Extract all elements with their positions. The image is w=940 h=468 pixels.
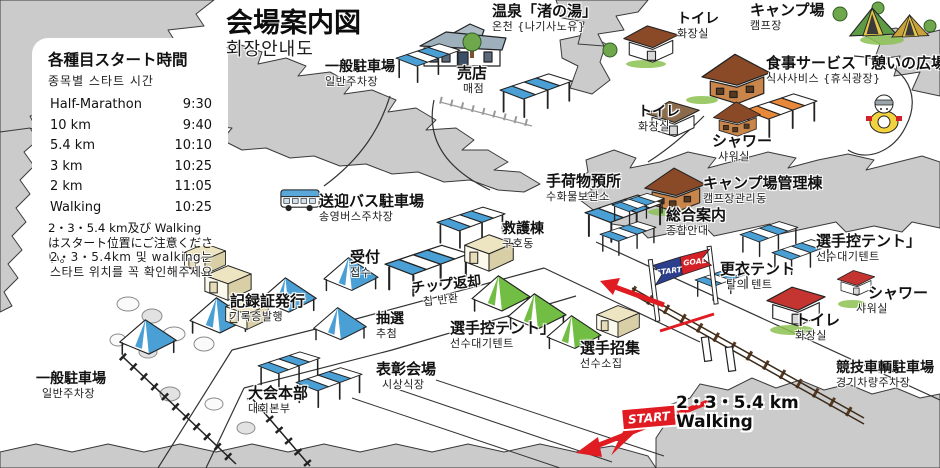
title-kr: 회장안내도 [226,41,361,60]
start-time-panel: 各種目スタート時間 종목별 스타트 시간 Half-Marathon9:30 1… [32,38,228,246]
label-reception: 受付접수 [350,250,380,278]
label-hq: 大会本部대회본부 [248,386,308,414]
schedule-heading-jp: 各種目スタート時間 [48,48,214,70]
schedule-row: 10 km9:40 [50,118,212,133]
label-toilet-top: トイレ화장실 [677,12,719,39]
schedule-note-kr: 2・3・5.4km 및 walking는 스타트 위치를 꼭 확인해주세요 [50,250,218,280]
course-line1: 2・3・5.4 km [676,394,799,413]
label-shuttle-parking: 送迎バス駐車場송영버스주차장 [319,194,424,222]
label-parking-bottom: 一般駐車場일반주차장 [36,372,106,399]
page-title: 会場案内図 회장안내도 [226,10,361,60]
shuttle-bus-icon [281,190,319,211]
label-toilet-mid: トイレ화장실 [638,105,680,132]
label-athlete-muster: 選手招集선수소집 [580,341,640,369]
venue-map: START GOAL START 会場案内図 회장안내도 各種目スタート時間 종… [0,0,940,468]
schedule-row: 2 km11:05 [50,179,212,194]
toilet-building-icon [624,26,678,62]
label-lottery: 抽選추첨 [376,312,404,339]
schedule-row: 5.4 km10:10 [50,138,212,153]
tent-icon [500,74,572,117]
course-line2: Walking [676,413,799,432]
schedule-row: 3 km10:25 [50,159,212,174]
camp-tent-icon [892,15,929,37]
label-shop: 売店매점 [457,66,487,94]
food-lodge-icon [702,54,770,103]
course-start-note: 2・3・5.4 km Walking [676,394,799,431]
label-camp-admin: キャンプ場管理棟캠프장관리동 [703,176,823,204]
label-record-cert: 記録証発行기록증발행 [230,294,305,322]
schedule-heading-kr: 종목별 스타트 시간 [48,72,214,89]
label-athlete-tent-right: 選手控テント」선수대기텐트 [816,234,921,262]
forest-bottom-strip [0,444,656,468]
title-jp: 会場案内図 [226,10,361,37]
label-onsen: 温泉「渚の湯」온천 {나기사노유} [492,4,597,32]
label-campsite: キャンプ場캠프장 [750,3,825,31]
label-shower-right: シャワー샤워실 [856,286,928,314]
label-athlete-tent-center: 選手控テント」선수대기텐트 [450,321,555,349]
label-toilet-bottom: トイレ화장실 [795,313,840,341]
label-food-service: 食事サービス「憩いの広場」식사사비스 {휴식광장} [766,56,940,84]
tent-icon [314,308,367,340]
tent-icon [600,222,656,256]
label-parking-top: 一般駐車場일반주차장 [325,60,395,87]
camp-tent-icon [850,8,896,36]
label-info: 総合案内종합안내 [666,208,726,236]
label-vehicle-parking: 競技車輌駐車場경기차량주차장 [836,361,934,388]
label-shower-mid: シャワー샤워실 [712,134,772,162]
label-awards: 表彰会場시상식장 [376,362,436,390]
label-baggage: 手荷物預所수화물보관소 [546,174,621,202]
label-first-aid: 救護棟구호동 [502,222,544,249]
fence-shop [440,100,532,126]
schedule-row: Walking10:25 [50,200,212,215]
label-changing-tent: 更衣テント탈의 텐트 [720,262,795,290]
mascot-icon [866,95,902,133]
schedule-row: Half-Marathon9:30 [50,97,212,112]
tent-icon [120,320,177,354]
